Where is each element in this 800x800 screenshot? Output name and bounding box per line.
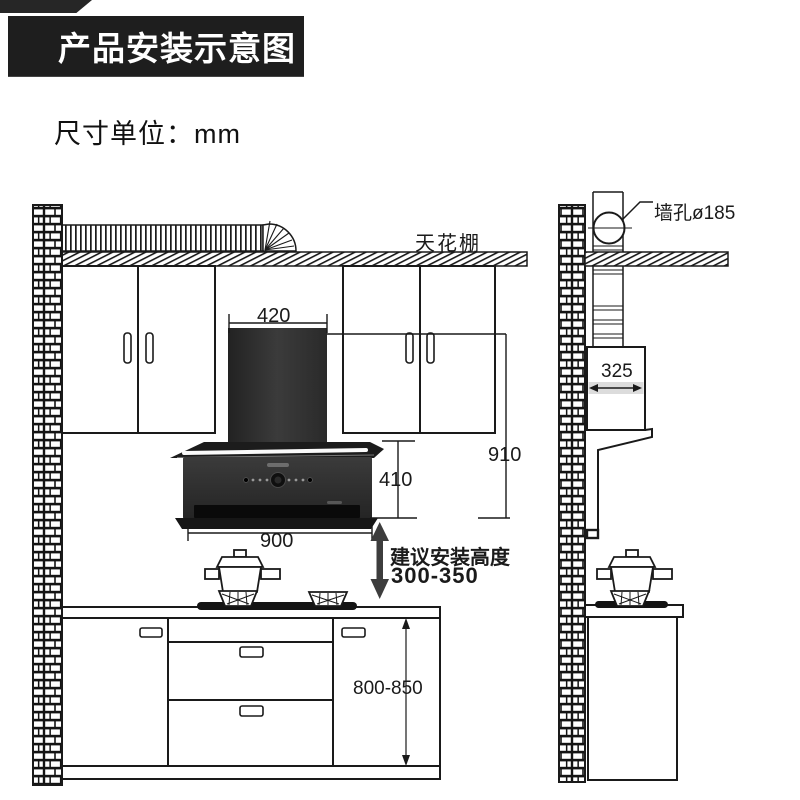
brick-wall-right — [559, 205, 585, 782]
exhaust-duct-horizontal — [62, 221, 296, 251]
range-hood-front — [170, 442, 384, 529]
dim-hood-side-depth: 325 — [601, 361, 633, 383]
ceiling-label: 天花棚 — [415, 227, 481, 256]
install-height-arrow — [371, 522, 390, 599]
install-height-advice-value: 300-350 — [391, 563, 479, 589]
model-mark — [327, 501, 342, 504]
ceiling-side — [585, 252, 728, 266]
base-cabinet-side — [588, 617, 677, 780]
cabinet-handle — [146, 333, 153, 363]
brand-logo-mark — [267, 463, 289, 467]
pot-front — [205, 550, 280, 606]
dim-hood-top-width: 420 — [257, 305, 290, 328]
dim-counter-height: 800-850 — [353, 678, 423, 700]
hood-base — [175, 518, 378, 529]
cabinet-handle — [406, 333, 413, 363]
upper-cabinet-right — [343, 266, 495, 433]
drawer-handle — [240, 647, 263, 657]
installation-diagram-page: 产品安装示意图 尺寸单位：mm — [0, 0, 800, 800]
wall-hole-leader-line — [623, 202, 653, 219]
wall-hole-label: 墙孔ø185 — [654, 198, 735, 225]
hood-chimney — [228, 328, 327, 445]
drawer-handle — [240, 706, 263, 716]
cabinet-handle — [140, 628, 162, 637]
burner-right — [309, 592, 347, 606]
dim-hood-body-width: 900 — [260, 530, 293, 553]
dim-hood-body-height: 410 — [379, 469, 412, 492]
cabinet-handle — [124, 333, 131, 363]
upper-cabinet-left — [62, 266, 215, 433]
wall-hole — [588, 202, 653, 244]
cabinet-handle — [342, 628, 365, 637]
dim-hood-total-height: 910 — [488, 444, 521, 467]
hood-suction-opening — [194, 505, 360, 518]
brick-wall-left — [33, 205, 62, 785]
cabinet-handle — [427, 333, 434, 363]
pot-side — [597, 550, 672, 606]
plinth — [62, 766, 440, 779]
